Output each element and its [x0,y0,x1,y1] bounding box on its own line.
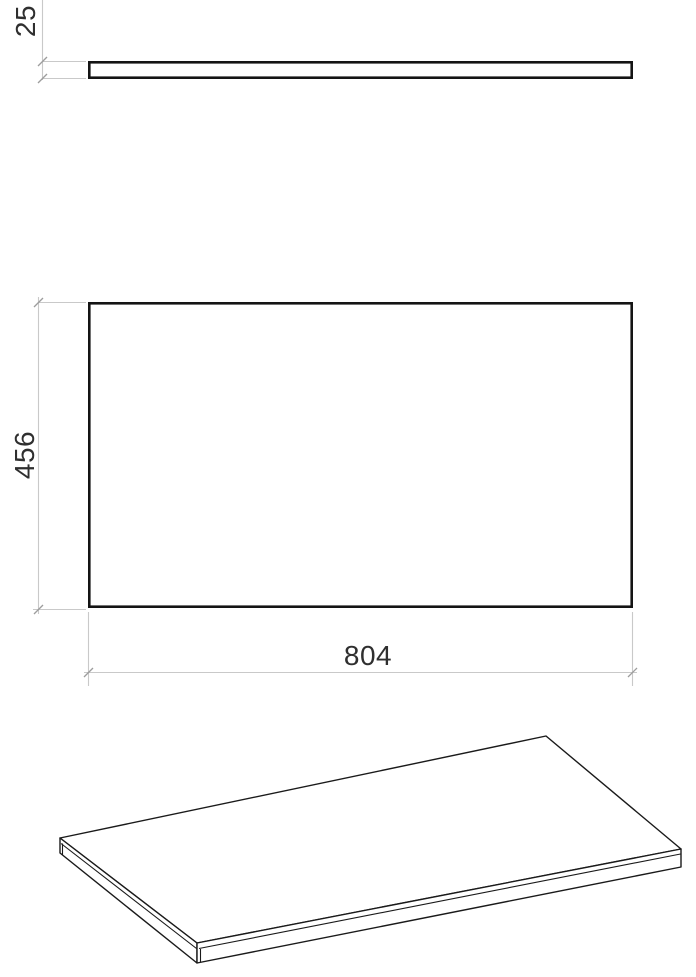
dimension-label-depth: 456 [9,431,41,479]
perspective-view [60,736,681,963]
dimension-label-thickness: 25 [10,5,42,37]
front-view-outline [89,303,631,606]
technical-drawing-canvas [0,0,696,977]
technical-drawing-page: 25 456 804 [0,0,696,977]
dimension-label-width: 804 [344,640,392,672]
side-view-outline [89,62,631,77]
